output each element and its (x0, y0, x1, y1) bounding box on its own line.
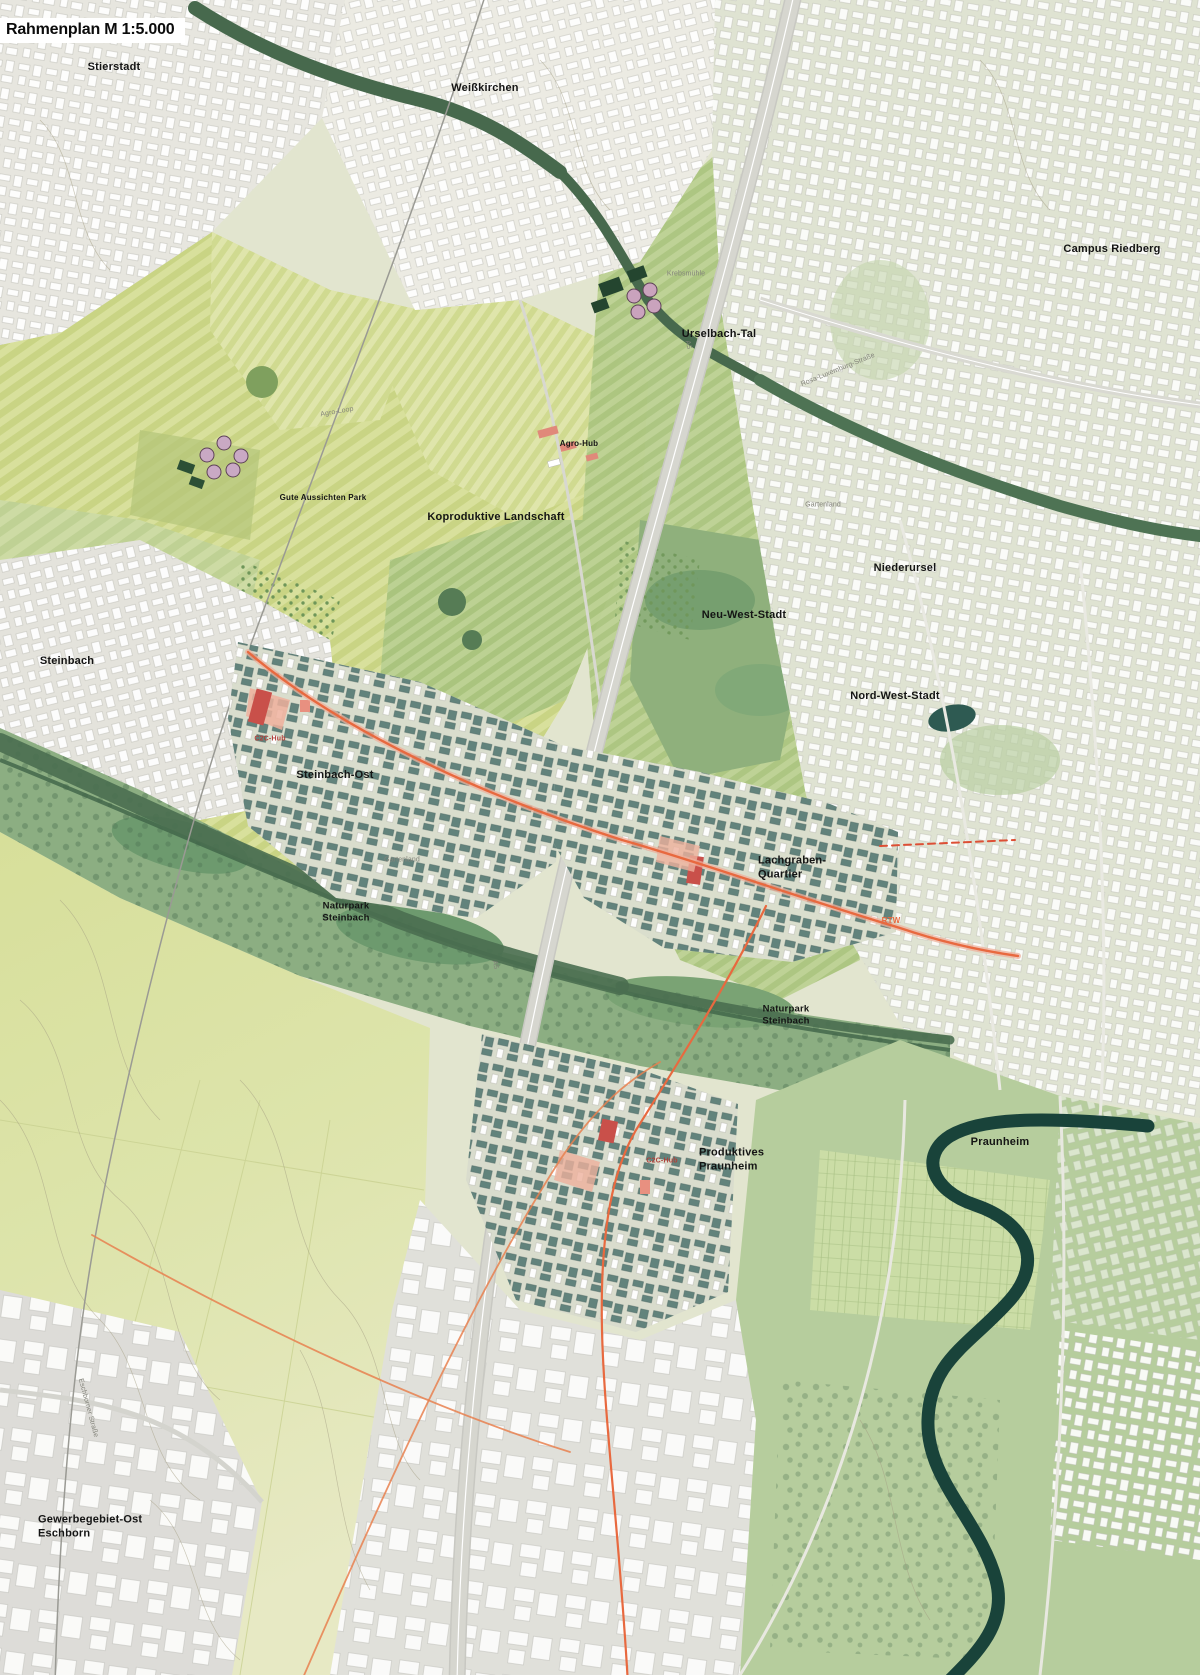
map-title: Rahmenplan M 1:5.000 (0, 18, 185, 43)
map-canvas (0, 0, 1200, 1675)
zone-southeast-green (736, 1040, 1200, 1675)
rahmenplan-map: StierstadtWeißkirchenCampus RiedbergUrse… (0, 0, 1200, 1675)
